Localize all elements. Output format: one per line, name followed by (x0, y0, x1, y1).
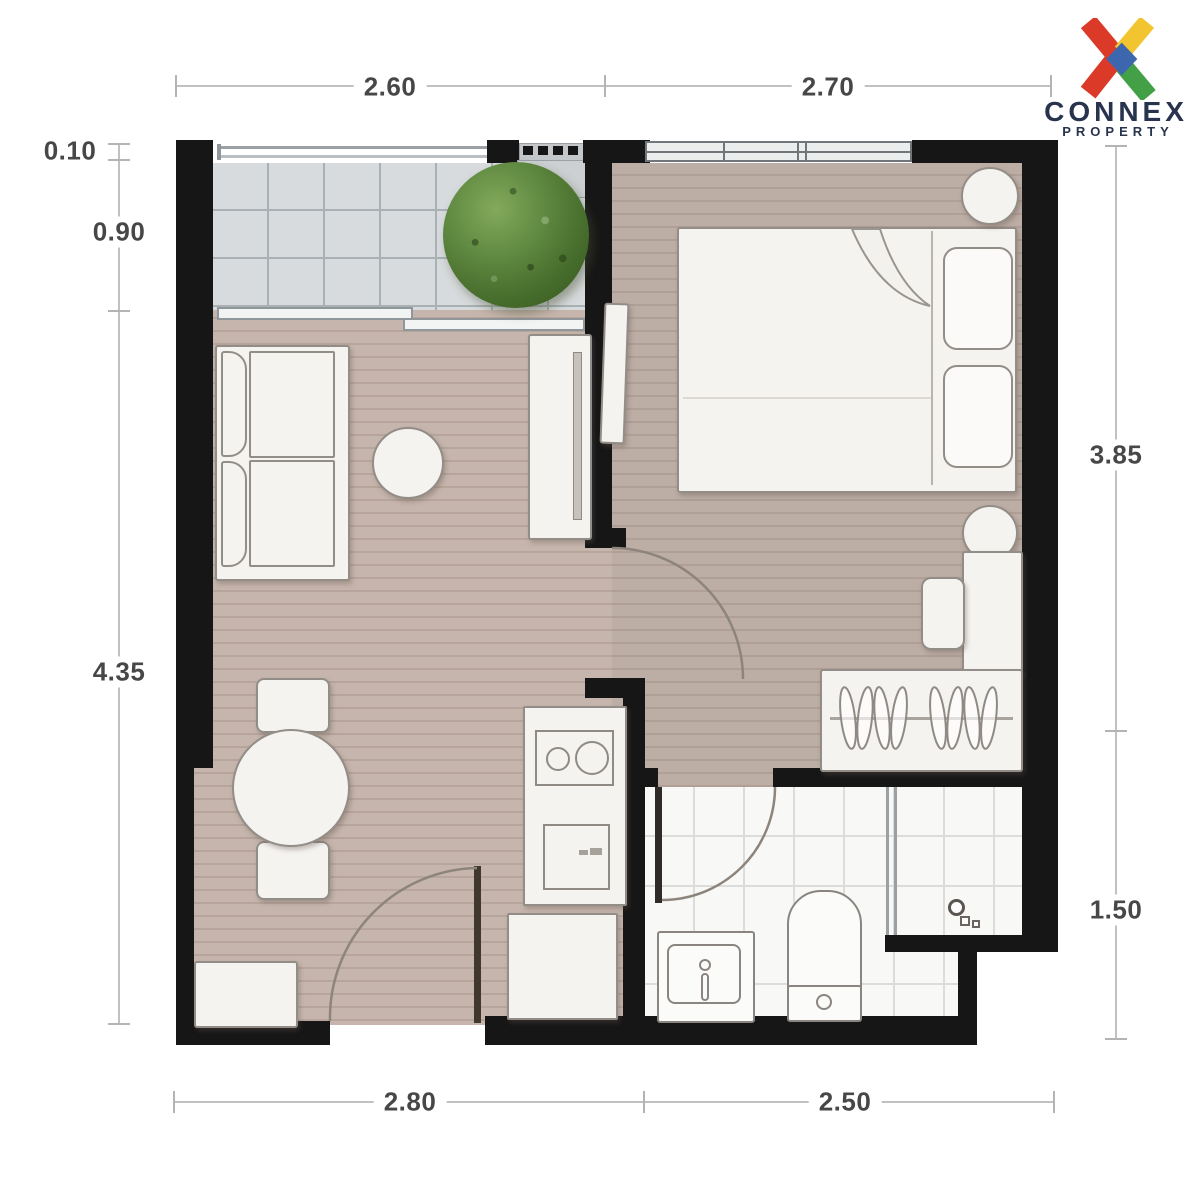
dim-label-bottom-left: 2.80 (374, 1087, 447, 1118)
pillow-bottom (943, 365, 1013, 468)
dim-tick (1105, 1038, 1127, 1040)
wall-bath-step (885, 935, 1058, 952)
wardrobe-rail (830, 717, 1013, 720)
refrigerator (507, 913, 618, 1020)
toilet-flush-button (816, 994, 832, 1010)
dim-label-left-3: 4.35 (83, 657, 156, 688)
sofa-back-cushion (221, 351, 247, 457)
sliding-door-panel-left (217, 307, 413, 320)
window-mullion (805, 143, 807, 160)
shower-glass-partition (886, 787, 889, 935)
toilet-bowl (787, 890, 862, 994)
logo-subtitle: PROPERTY (1040, 124, 1196, 139)
dim-tick (1105, 145, 1127, 147)
window-mullion (723, 143, 725, 160)
window-mullion (797, 143, 799, 160)
dim-label-right-1: 3.85 (1080, 440, 1153, 471)
vent-dash (568, 146, 578, 155)
coffee-table (372, 427, 444, 499)
wall-left-upper (176, 140, 213, 768)
sofa-back-cushion (221, 461, 247, 567)
dim-tick (108, 310, 130, 312)
exterior-notch (977, 952, 1027, 1027)
dim-label-top-right: 2.70 (792, 72, 865, 103)
sliding-door-panel-right (403, 318, 585, 331)
dim-tick (108, 1023, 130, 1025)
dim-label-bottom-right: 2.50 (809, 1087, 882, 1118)
dim-line-bottom (174, 1101, 1055, 1103)
tv (573, 352, 582, 520)
dim-line-left (118, 144, 120, 1025)
bedroom-door-leaf (600, 303, 630, 445)
dining-chair-top (256, 678, 330, 733)
faucet-mark (590, 848, 602, 855)
dining-table (232, 729, 350, 847)
window-glazing-line (647, 151, 910, 153)
balcony-plant-icon (443, 162, 589, 308)
dim-tick (175, 75, 177, 97)
shower-glass-partition (894, 787, 897, 935)
dim-line-top (176, 85, 1052, 87)
vent-dash (523, 146, 533, 155)
kitchen-sink (543, 824, 610, 890)
dim-tick (1050, 75, 1052, 97)
bed-sheet-line (683, 397, 931, 399)
dim-tick (173, 1091, 175, 1113)
bathroom-vanity (657, 931, 755, 1023)
balcony-railing (217, 146, 487, 158)
wall-balcony-pier (487, 140, 519, 163)
connex-logo-icon (1075, 18, 1157, 100)
logo-green-arm (1123, 66, 1148, 96)
entrance-door-leaf (474, 866, 481, 1023)
shower-control-icon (972, 920, 980, 928)
sofa (215, 345, 350, 581)
pillow-top (943, 247, 1013, 350)
vent-dash (538, 146, 548, 155)
bedroom-window (645, 141, 912, 162)
dim-tick (1105, 730, 1127, 732)
tv-console (528, 334, 592, 540)
desk-chair (921, 577, 965, 650)
railing-end-post (217, 144, 221, 160)
dim-tick (1053, 1091, 1055, 1113)
logo-red-chevron (1088, 22, 1117, 93)
bathroom-door-leaf (655, 787, 662, 903)
bed-sheet-line (931, 231, 933, 485)
dim-tick (643, 1091, 645, 1113)
kitchen-counter (523, 706, 627, 906)
faucet-icon (701, 973, 709, 1001)
sofa-seat-cushion (249, 460, 335, 567)
dim-tick (108, 143, 130, 145)
wardrobe (820, 669, 1023, 772)
dim-label-right-2: 1.50 (1080, 895, 1153, 926)
wall-left-lower (176, 768, 194, 1045)
floor-plan-canvas: 2.60 2.70 2.80 2.50 0.10 0.90 4.35 3.85 … (0, 0, 1200, 1191)
hob (535, 730, 614, 786)
dim-label-left-1: 0.10 (34, 136, 107, 167)
logo-yellow-arm (1122, 22, 1147, 52)
desk (962, 551, 1023, 675)
wall-notch-vertical (958, 952, 977, 1045)
logo-blue-diamond (1106, 43, 1137, 76)
toilet-cistern (787, 985, 862, 1022)
nightstand-top (961, 167, 1019, 225)
shoe-cabinet (194, 961, 298, 1028)
faucet-icon (699, 959, 711, 971)
faucet-mark (579, 850, 588, 855)
hob-burner-small (546, 747, 570, 771)
wall-right (1022, 140, 1058, 952)
shower-control-icon (960, 916, 970, 926)
dim-label-left-2: 0.90 (83, 217, 156, 248)
vent-dash (553, 146, 563, 155)
shower-mixer-icon (948, 899, 965, 916)
sofa-seat-cushion (249, 351, 335, 458)
dim-label-top-left: 2.60 (354, 72, 427, 103)
dim-tick (108, 159, 130, 161)
dim-tick (604, 75, 606, 97)
hob-burner-large (575, 741, 609, 775)
wall-bath-door-jamb (645, 768, 658, 787)
dining-chair-bottom (256, 841, 330, 900)
